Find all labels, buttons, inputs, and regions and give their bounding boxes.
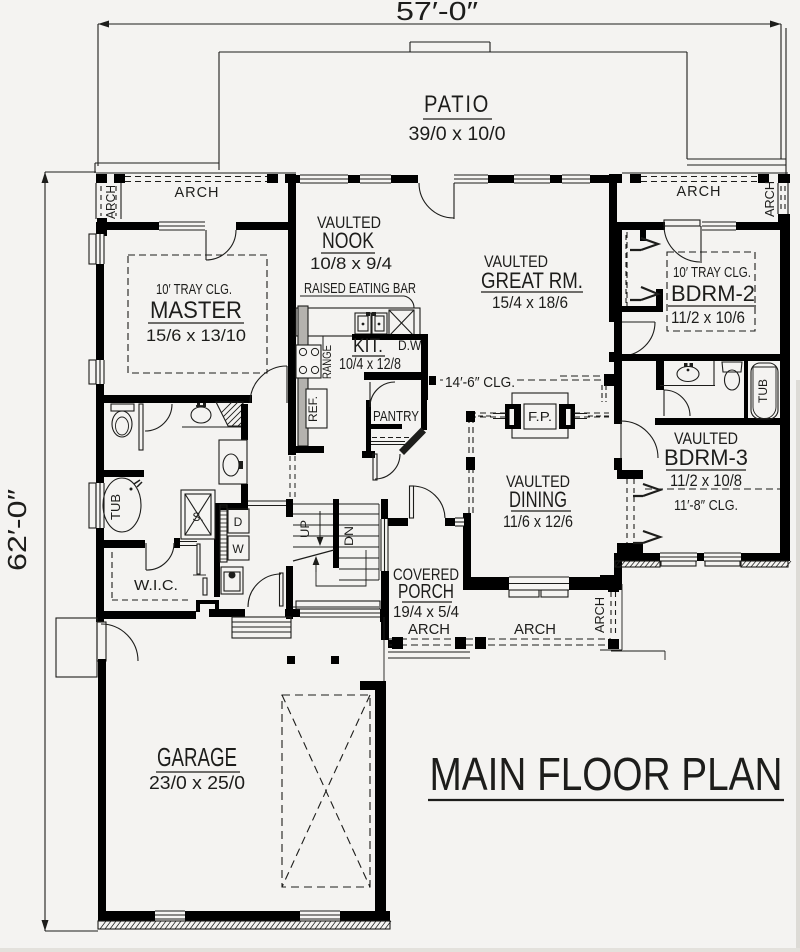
svg-text:TUB: TUB: [108, 494, 123, 520]
svg-text:DN: DN: [342, 526, 356, 546]
svg-text:PATIO: PATIO: [424, 91, 490, 118]
svg-text:W: W: [232, 542, 244, 556]
svg-text:11/2 x 10/8: 11/2 x 10/8: [670, 471, 742, 490]
svg-text:23/0 x 25/0: 23/0 x 25/0: [149, 773, 245, 793]
svg-text:GARAGE: GARAGE: [157, 742, 237, 772]
svg-text:ARCH: ARCH: [592, 597, 607, 633]
svg-text:UP: UP: [298, 520, 312, 538]
svg-text:15/4 x 18/6: 15/4 x 18/6: [492, 293, 568, 312]
svg-text:DINING: DINING: [509, 487, 567, 512]
svg-text:ARCH: ARCH: [762, 181, 777, 217]
svg-text:ARCH: ARCH: [175, 184, 220, 201]
svg-text:14′-6″ CLG.: 14′-6″ CLG.: [445, 374, 515, 391]
svg-text:11/2 x 10/6: 11/2 x 10/6: [671, 308, 745, 327]
svg-text:11′-8″ CLG.: 11′-8″ CLG.: [674, 497, 738, 514]
svg-text:TUB: TUB: [756, 379, 770, 403]
svg-text:10/4 x 12/8: 10/4 x 12/8: [339, 356, 401, 373]
svg-text:11/6 x 12/6: 11/6 x 12/6: [503, 512, 573, 531]
svg-text:10′ TRAY CLG.: 10′ TRAY CLG.: [156, 281, 232, 298]
svg-text:ARCH: ARCH: [677, 183, 722, 200]
svg-text:RANGE: RANGE: [320, 345, 334, 379]
svg-text:D.W.: D.W.: [398, 337, 424, 353]
svg-text:BDRM-2: BDRM-2: [671, 281, 755, 306]
svg-text:D: D: [234, 515, 243, 529]
svg-text:PORCH: PORCH: [398, 581, 454, 603]
svg-text:GREAT RM.: GREAT RM.: [481, 268, 583, 293]
svg-text:19/4 x 5/4: 19/4 x 5/4: [393, 604, 459, 621]
svg-text:REF.: REF.: [306, 396, 320, 422]
svg-text:RAISED EATING BAR: RAISED EATING BAR: [304, 280, 416, 297]
svg-text:39/0 x 10/0: 39/0 x 10/0: [409, 124, 506, 145]
svg-text:F.P.: F.P.: [528, 409, 552, 424]
svg-text:ARCH: ARCH: [408, 621, 450, 638]
svg-text:KIT.: KIT.: [353, 336, 383, 357]
svg-text:BDRM-3: BDRM-3: [664, 445, 748, 470]
svg-text:PANTRY: PANTRY: [373, 408, 419, 425]
svg-text:10′ TRAY CLG.: 10′ TRAY CLG.: [673, 264, 751, 281]
svg-text:10/8 x 9/4: 10/8 x 9/4: [310, 254, 392, 273]
svg-text:NOOK: NOOK: [322, 228, 374, 253]
svg-text:S.: S.: [192, 510, 203, 524]
svg-text:57′-0″: 57′-0″: [396, 0, 478, 26]
svg-text:W.I.C.: W.I.C.: [134, 577, 178, 594]
svg-text:MASTER: MASTER: [150, 297, 242, 324]
svg-text:15/6 x 13/10: 15/6 x 13/10: [146, 326, 246, 345]
svg-text:62′-0″: 62′-0″: [2, 489, 32, 571]
svg-text:ARCH: ARCH: [514, 621, 556, 638]
svg-text:MAIN FLOOR PLAN: MAIN FLOOR PLAN: [430, 748, 783, 800]
svg-text:ARCH: ARCH: [103, 185, 118, 219]
